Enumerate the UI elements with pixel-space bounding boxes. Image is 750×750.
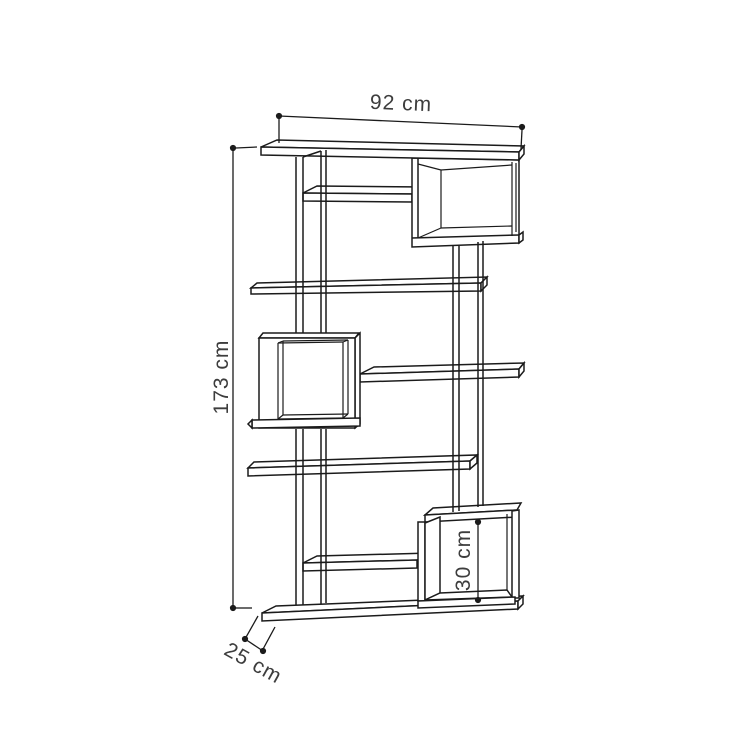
cube-middle-left — [248, 333, 360, 428]
dimension-cube-height: 30 cm — [452, 519, 481, 603]
dimension-endpoint-dot — [475, 597, 481, 603]
shelf-fourth — [248, 455, 477, 476]
dimension-endpoint-dot — [276, 113, 282, 119]
bookcase-dimension-diagram: 92 cm 173 cm 25 cm 30 cm — [0, 0, 750, 750]
bookcase-drawing: 92 cm 173 cm 25 cm 30 cm — [0, 0, 750, 750]
cube-top-right — [412, 158, 523, 247]
dimension-endpoint-dot — [230, 605, 236, 611]
width-label: 92 cm — [369, 91, 432, 117]
dimension-height: 173 cm — [210, 145, 257, 611]
dimension-endpoint-dot — [475, 519, 481, 525]
dimension-endpoint-dot — [242, 636, 248, 642]
cube-height-label: 30 cm — [452, 529, 475, 591]
dimension-depth: 25 cm — [220, 616, 286, 688]
height-label: 173 cm — [210, 340, 233, 415]
depth-label: 25 cm — [220, 638, 286, 688]
dimension-endpoint-dot — [519, 124, 525, 130]
dimension-endpoint-dot — [230, 145, 236, 151]
shelf-second — [251, 277, 487, 294]
shelf-third — [360, 363, 524, 382]
shelf-lower-inner — [303, 553, 431, 571]
dimension-endpoint-dot — [260, 648, 266, 654]
